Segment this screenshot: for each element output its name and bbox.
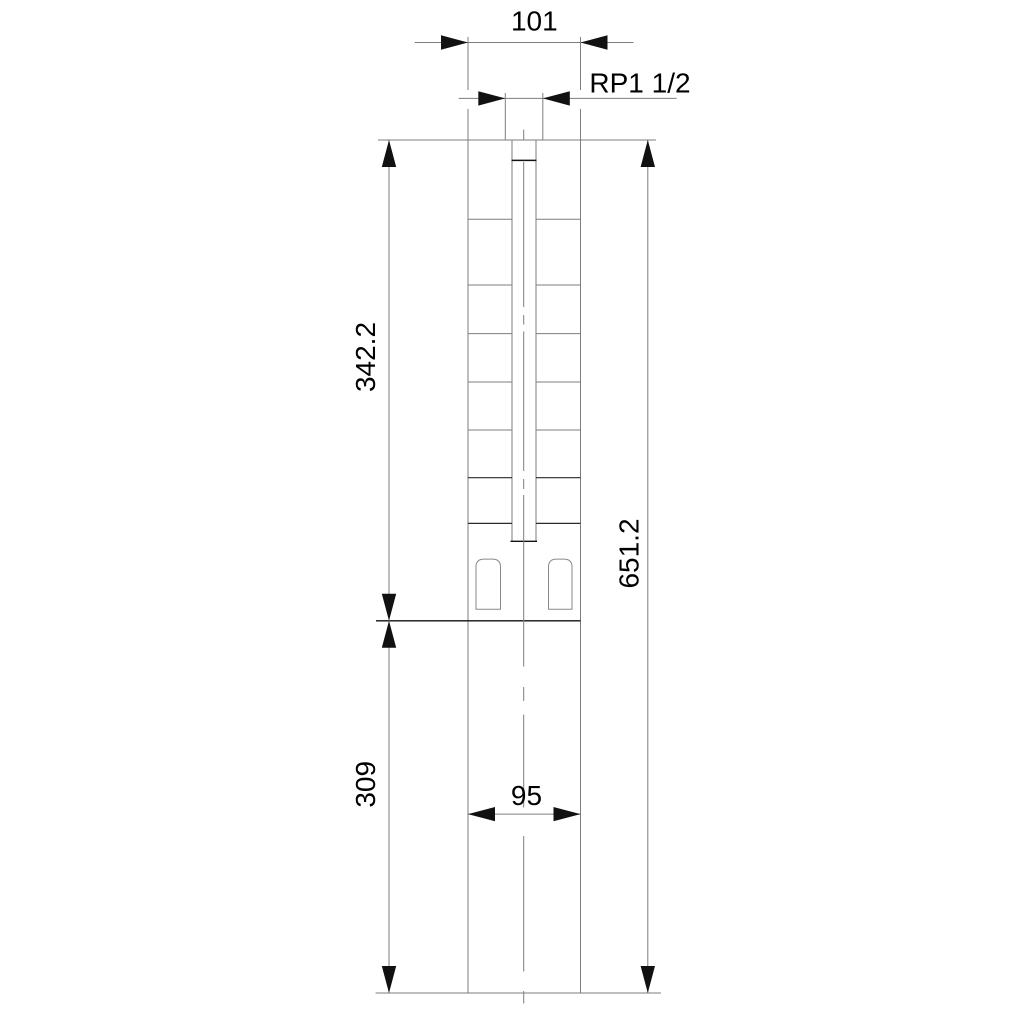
svg-text:95: 95: [511, 780, 542, 811]
svg-text:101: 101: [511, 6, 558, 37]
svg-text:RP1 1/2: RP1 1/2: [589, 67, 690, 98]
svg-text:651.2: 651.2: [613, 518, 644, 588]
svg-text:309: 309: [350, 761, 381, 808]
svg-text:342.2: 342.2: [350, 322, 381, 392]
